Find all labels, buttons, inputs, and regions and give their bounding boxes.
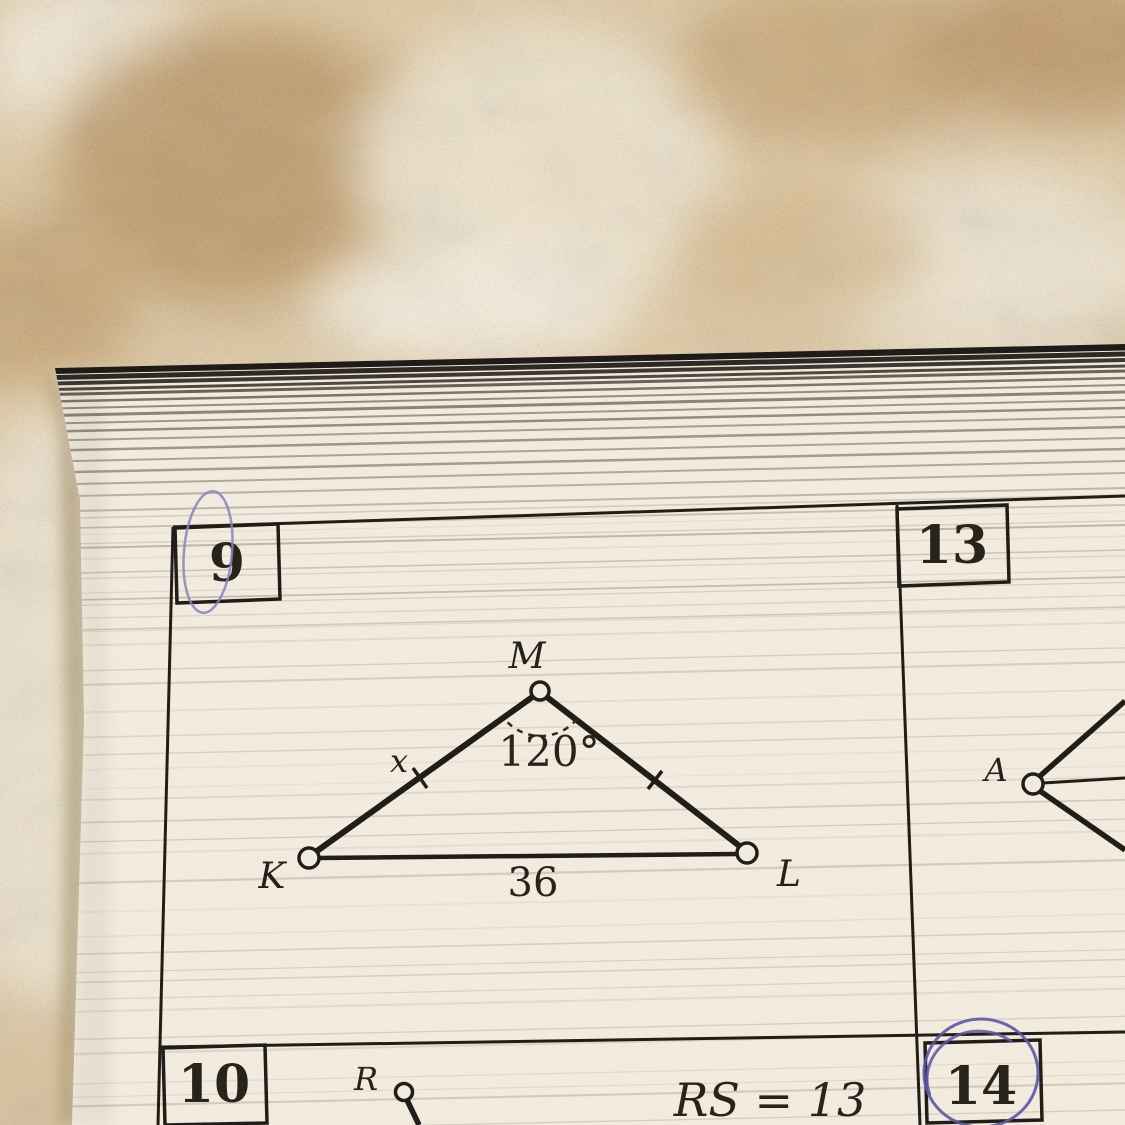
photo-grain-overlay	[0, 0, 1125, 1125]
photo-of-worksheet: 9 13 10 14 M K L x 120° 36 A R RS = 13	[0, 0, 1125, 1125]
worksheet-photo-canvas: 9 13 10 14 M K L x 120° 36 A R RS = 13	[0, 0, 1125, 1125]
